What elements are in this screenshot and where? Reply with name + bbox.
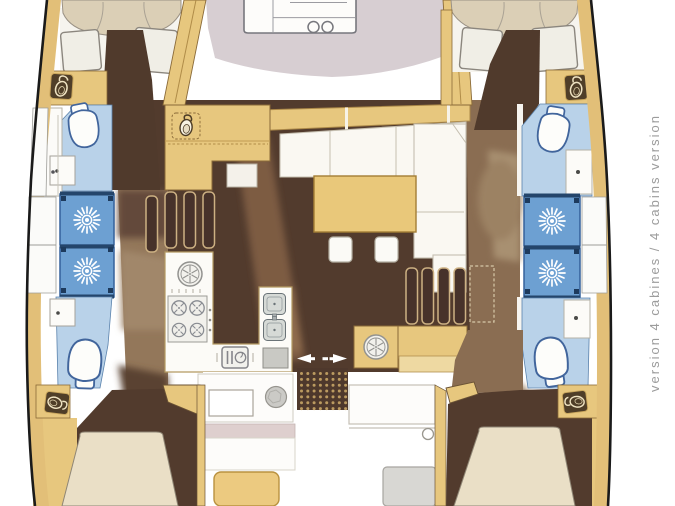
- svg-text:version 4 cabines / 4 cabins v: version 4 cabines / 4 cabins version: [647, 114, 662, 392]
